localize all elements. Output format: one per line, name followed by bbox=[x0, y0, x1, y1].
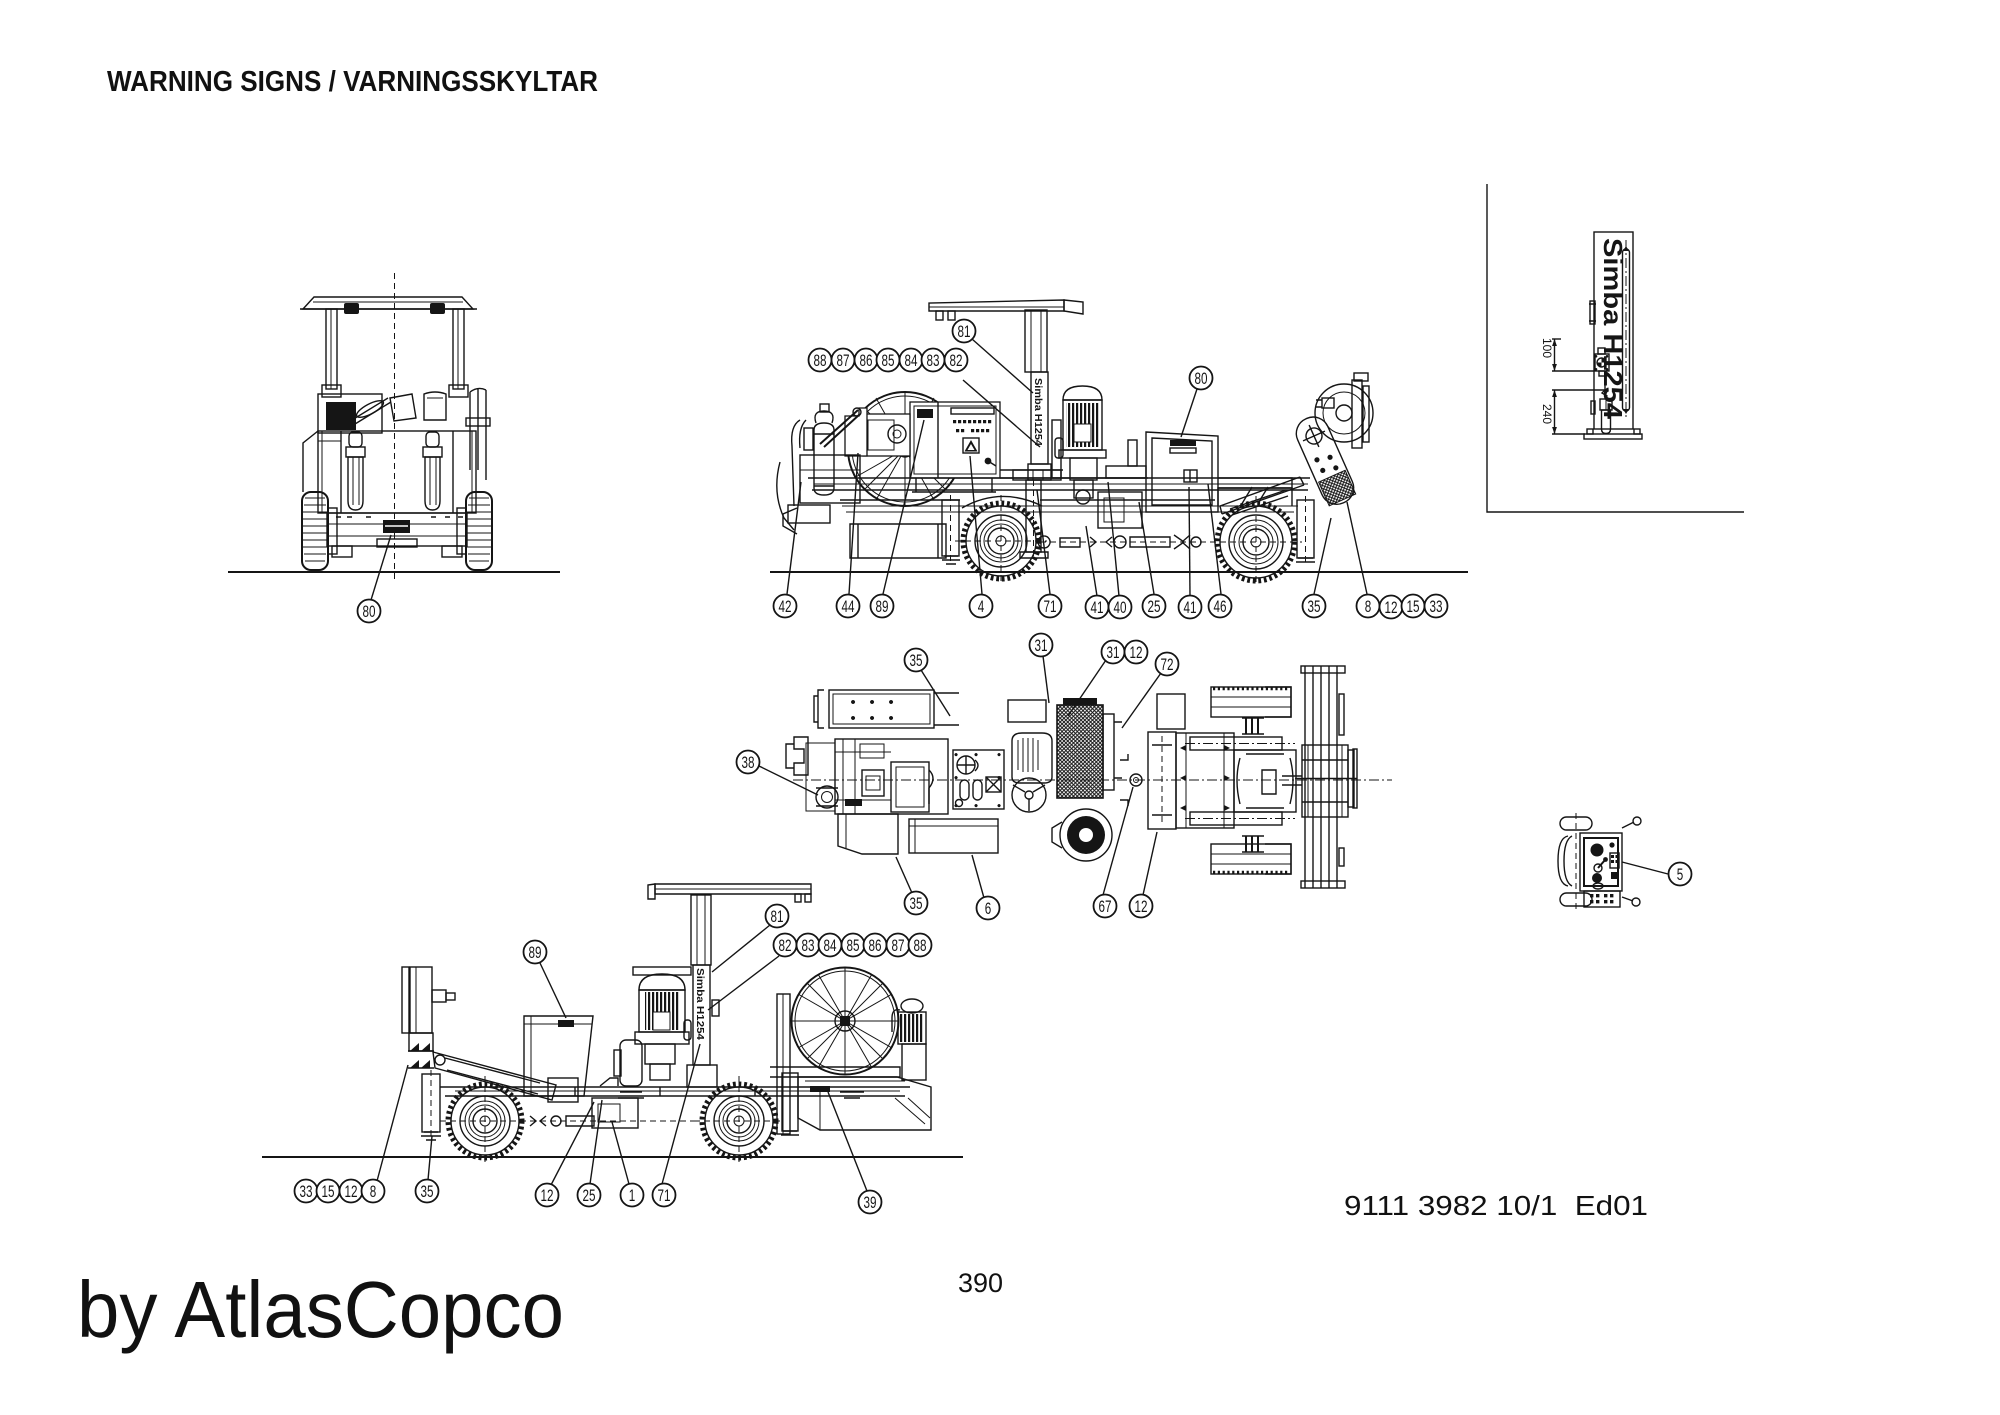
svg-text:86: 86 bbox=[860, 351, 873, 370]
svg-text:WARNING SIGNS / VARNINGSSKYLTA: WARNING SIGNS / VARNINGSSKYLTAR bbox=[107, 66, 598, 98]
svg-text:240: 240 bbox=[1540, 404, 1554, 424]
svg-text:Simba H1254: Simba H1254 bbox=[1032, 378, 1044, 446]
svg-text:82: 82 bbox=[779, 936, 792, 955]
svg-text:85: 85 bbox=[847, 936, 860, 955]
svg-text:38: 38 bbox=[742, 753, 755, 772]
svg-text:35: 35 bbox=[1308, 597, 1321, 616]
svg-text:35: 35 bbox=[910, 894, 923, 913]
svg-text:15: 15 bbox=[1407, 597, 1420, 616]
svg-text:390: 390 bbox=[958, 1268, 1003, 1298]
svg-text:46: 46 bbox=[1214, 597, 1227, 616]
svg-text:84: 84 bbox=[905, 351, 918, 370]
svg-text:35: 35 bbox=[421, 1182, 434, 1201]
svg-text:80: 80 bbox=[363, 602, 376, 621]
svg-text:71: 71 bbox=[658, 1186, 671, 1205]
svg-text:31: 31 bbox=[1107, 643, 1120, 662]
svg-text:6: 6 bbox=[985, 899, 992, 918]
svg-text:85: 85 bbox=[882, 351, 895, 370]
svg-text:31: 31 bbox=[1035, 636, 1048, 655]
svg-text:40: 40 bbox=[1114, 598, 1127, 617]
svg-text:88: 88 bbox=[914, 936, 927, 955]
svg-text:87: 87 bbox=[892, 936, 905, 955]
svg-text:1: 1 bbox=[629, 1186, 636, 1205]
svg-text:89: 89 bbox=[876, 597, 889, 616]
svg-text:83: 83 bbox=[802, 936, 815, 955]
svg-text:72: 72 bbox=[1161, 655, 1174, 674]
svg-text:84: 84 bbox=[824, 936, 837, 955]
svg-text:41: 41 bbox=[1184, 598, 1197, 617]
svg-text:100: 100 bbox=[1540, 338, 1554, 358]
svg-text:9111 3982 10/1 Ed01: 9111 3982 10/1 Ed01 bbox=[1344, 1190, 1648, 1221]
svg-text:8: 8 bbox=[1365, 597, 1372, 616]
svg-text:4: 4 bbox=[978, 597, 985, 616]
svg-text:81: 81 bbox=[771, 907, 784, 926]
svg-text:82: 82 bbox=[950, 351, 963, 370]
svg-text:12: 12 bbox=[345, 1182, 358, 1201]
svg-text:12: 12 bbox=[541, 1186, 554, 1205]
svg-text:80: 80 bbox=[1195, 369, 1208, 388]
svg-text:67: 67 bbox=[1099, 897, 1112, 916]
svg-text:12: 12 bbox=[1385, 598, 1398, 617]
svg-text:41: 41 bbox=[1091, 598, 1104, 617]
svg-text:33: 33 bbox=[300, 1182, 313, 1201]
svg-text:71: 71 bbox=[1044, 597, 1057, 616]
svg-text:39: 39 bbox=[864, 1193, 877, 1212]
svg-text:8: 8 bbox=[370, 1182, 377, 1201]
svg-text:25: 25 bbox=[1148, 597, 1161, 616]
svg-text:15: 15 bbox=[322, 1182, 335, 1201]
svg-text:81: 81 bbox=[958, 322, 971, 341]
svg-text:12: 12 bbox=[1130, 643, 1143, 662]
svg-text:87: 87 bbox=[837, 351, 850, 370]
svg-text:44: 44 bbox=[842, 597, 855, 616]
svg-text:33: 33 bbox=[1430, 597, 1443, 616]
svg-text:89: 89 bbox=[529, 943, 542, 962]
svg-text:88: 88 bbox=[814, 351, 827, 370]
svg-text:42: 42 bbox=[779, 597, 792, 616]
svg-text:25: 25 bbox=[583, 1186, 596, 1205]
svg-text:86: 86 bbox=[869, 936, 882, 955]
svg-text:83: 83 bbox=[927, 351, 940, 370]
svg-text:by AtlasCopco: by AtlasCopco bbox=[77, 1265, 564, 1354]
svg-text:Simba H1254: Simba H1254 bbox=[694, 968, 706, 1040]
svg-text:5: 5 bbox=[1677, 865, 1684, 884]
svg-text:35: 35 bbox=[910, 651, 923, 670]
svg-text:12: 12 bbox=[1135, 897, 1148, 916]
